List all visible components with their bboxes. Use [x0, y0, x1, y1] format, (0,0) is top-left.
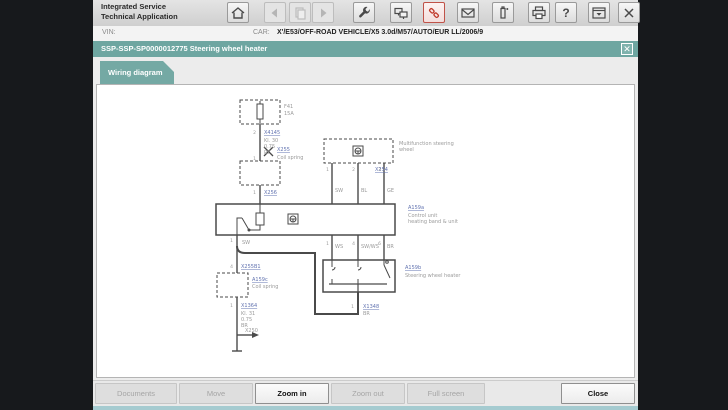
steering-wheel-icon [288, 214, 298, 224]
mfl-label: wheel [399, 147, 414, 153]
back-arrow-icon [267, 5, 283, 21]
documents-button[interactable]: Documents [95, 383, 177, 404]
probe-icon [495, 5, 511, 21]
terminal-mode-button[interactable] [390, 2, 412, 23]
wire-color: BR [363, 311, 370, 317]
app-title-line2: Technical Application [101, 12, 178, 22]
wire-color: SW [335, 188, 343, 194]
screenshot-stage: Integrated Service Technical Application [0, 0, 728, 410]
connector-link[interactable]: X1364 [241, 303, 257, 309]
printer-icon [531, 5, 547, 21]
back-button[interactable] [264, 2, 286, 23]
component-label: Steering wheel heater [405, 273, 461, 279]
close-icon: ✕ [623, 45, 631, 54]
connector-link[interactable]: X254 [375, 167, 388, 173]
action-bar: Documents Move Zoom in Zoom out Full scr… [93, 380, 638, 407]
button-label: Move [207, 389, 225, 398]
pin-label: 4 [230, 264, 233, 270]
bottom-accent-strip [93, 406, 638, 410]
relay-symbol [237, 204, 264, 235]
pin-label: 4 [352, 241, 355, 247]
full-screen-button[interactable]: Full screen [407, 383, 485, 404]
coil-spring-box [240, 161, 280, 185]
heater-contacts [329, 260, 390, 292]
wire-color: BL [361, 188, 367, 194]
envelope-icon [460, 5, 476, 21]
document-title: SSP-SSP-SP0000012775 Steering wheel heat… [101, 44, 267, 53]
pin-label: 2 [253, 130, 256, 136]
cut-label: Coil spring [277, 155, 303, 161]
forward-button[interactable] [312, 2, 334, 23]
connector-link[interactable]: X256 [264, 190, 277, 196]
workshop-tools-button[interactable] [353, 2, 375, 23]
print-button[interactable] [528, 2, 550, 23]
component-label: Coil spring [252, 284, 278, 290]
document-title-bar: SSP-SSP-SP0000012775 Steering wheel heat… [93, 41, 638, 57]
title-toolbar: Integrated Service Technical Application [93, 0, 638, 27]
pin-label: 2 [352, 167, 355, 173]
pin-label: 1 [326, 241, 329, 247]
fuse-symbol [257, 104, 263, 119]
zoom-out-button[interactable]: Zoom out [331, 383, 405, 404]
wiring-diagram-canvas: F41 15A 2 X4145 Kl. 30 0.75 RT 1 X255 Co… [97, 85, 634, 377]
tab-label: Wiring diagram [108, 68, 163, 77]
button-label: Zoom out [352, 389, 384, 398]
ista-window: Integrated Service Technical Application [93, 0, 638, 410]
zoom-in-button[interactable]: Zoom in [255, 383, 329, 404]
vin-label: VIN: [102, 29, 116, 36]
pin-label: 1 [351, 304, 354, 310]
measuring-devices-button[interactable] [492, 2, 514, 23]
home-button[interactable] [227, 2, 249, 23]
minimize-window-button[interactable] [588, 2, 610, 23]
close-window-button[interactable] [618, 2, 640, 23]
wire-color: SW [242, 240, 250, 246]
pin-label: 3 [378, 167, 381, 173]
component-label: heating band & unit [408, 219, 458, 225]
document-stack-icon [292, 5, 308, 21]
app-title-line1: Integrated Service [101, 2, 178, 12]
button-label: Documents [117, 389, 155, 398]
steering-wheel-icon [353, 146, 363, 156]
pin-label: 1 [230, 238, 233, 244]
button-label: Close [588, 389, 608, 398]
home-icon [230, 5, 246, 21]
connector-link[interactable]: X1348 [363, 304, 379, 310]
vehicle-connection-button[interactable] [423, 2, 445, 23]
close-icon [621, 5, 637, 21]
dual-display-icon [393, 5, 409, 21]
content-area: Wiring diagram [93, 57, 638, 380]
wiring-diagram-panel: F41 15A 2 X4145 Kl. 30 0.75 RT 1 X255 Co… [96, 84, 635, 378]
wire-color: BR [387, 244, 394, 250]
fuse-ref-label: F41 [284, 104, 293, 110]
document-close-button[interactable]: ✕ [621, 43, 633, 55]
component-link[interactable]: A159b [405, 265, 421, 271]
wrench-icon [356, 5, 372, 21]
button-label: Zoom in [277, 389, 306, 398]
window-minimize-icon [591, 5, 607, 21]
fuse-amp-label: 15A [284, 111, 294, 117]
lower-coil-spring-box [217, 273, 248, 297]
tab-wiring-diagram[interactable]: Wiring diagram [100, 61, 174, 84]
wire-color: GE [387, 188, 394, 194]
connector-link[interactable]: X4145 [264, 130, 280, 136]
connector-link[interactable]: X255B1 [241, 264, 261, 270]
messages-button[interactable] [457, 2, 479, 23]
wire-color: SW/WS [361, 244, 379, 250]
button-label: Full screen [428, 389, 465, 398]
vehicle-identification: X'/E53/OFF-ROAD VEHICLE/X5 3.0d/M57/AUTO… [277, 29, 483, 36]
close-button[interactable]: Close [561, 383, 635, 404]
document-button[interactable] [289, 2, 311, 23]
help-button[interactable]: ? [555, 2, 577, 23]
pin-label: 1 [253, 190, 256, 196]
help-icon: ? [562, 6, 569, 20]
app-title: Integrated Service Technical Application [101, 2, 178, 22]
component-link[interactable]: A159a [408, 205, 424, 211]
pin-label: 1 [253, 156, 256, 162]
car-label: CAR: [253, 29, 270, 36]
pin-label: 1 [230, 303, 233, 309]
vin-bar: VIN: CAR: X'/E53/OFF-ROAD VEHICLE/X5 3.0… [93, 26, 638, 42]
broken-link-icon [426, 5, 442, 21]
wire-color: WS [335, 244, 343, 250]
component-link[interactable]: A159c [252, 277, 268, 283]
connector-link[interactable]: X255 [277, 147, 290, 153]
ground-point-label: X250 [245, 328, 258, 334]
pin-label: 1 [326, 167, 329, 173]
move-button[interactable]: Move [179, 383, 253, 404]
forward-arrow-icon [315, 5, 331, 21]
wire-spec: RT [264, 150, 271, 156]
